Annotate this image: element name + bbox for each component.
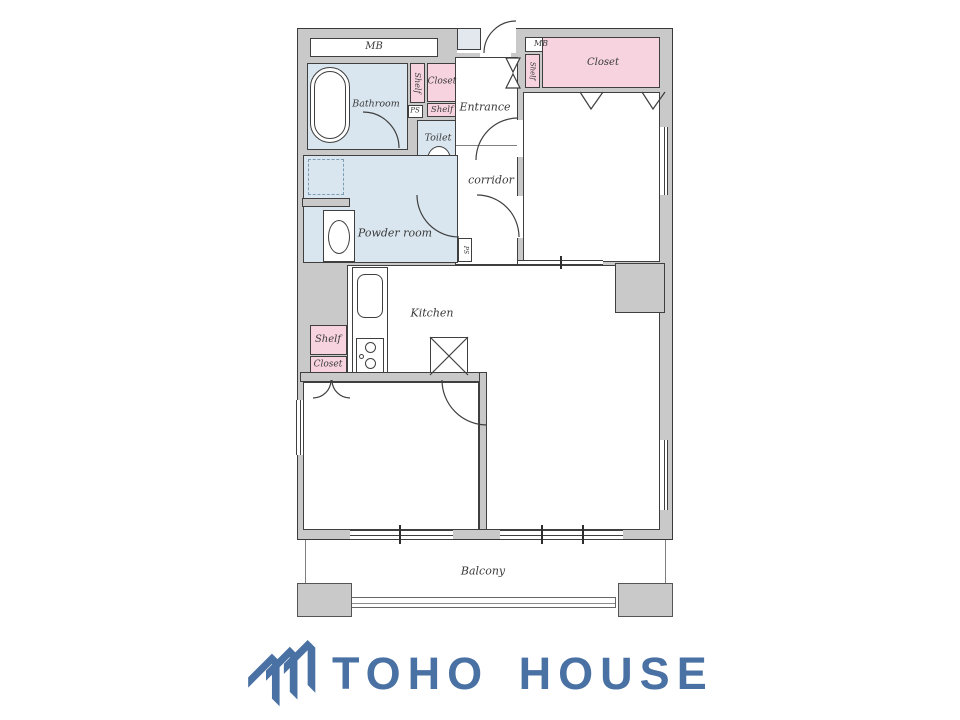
wall-bedroom-horizontal — [300, 372, 483, 382]
entrance-step-line — [456, 145, 517, 146]
pillar-left — [297, 583, 352, 617]
label-balcony: Balcony — [461, 566, 505, 577]
label-shelf-top-vertical: Shelf — [413, 73, 421, 94]
window-bedroom-top-right — [659, 127, 668, 195]
page: MB Shelf Closet PS Shelf Bathroom Toilet… — [0, 0, 960, 720]
label-entrance: Entrance — [459, 102, 510, 113]
toho-house-logo-icon — [248, 640, 318, 708]
window-living-right — [659, 440, 668, 510]
label-shelf-right-vertical: Shelf — [529, 62, 536, 80]
stove-knob — [359, 354, 364, 359]
room-entrance-corridor — [455, 57, 518, 265]
balcony-edge-right — [665, 540, 666, 585]
stove-burner-1 — [365, 342, 376, 353]
toho-house-logo: TOHO HOUSE — [248, 634, 718, 714]
label-closet-top: Closet — [428, 78, 457, 87]
label-toilet: Toilet — [425, 133, 452, 143]
label-bathroom: Bathroom — [352, 99, 400, 109]
bathtub-inner — [314, 71, 346, 139]
label-powder-room: Powder room — [358, 228, 432, 239]
label-mb-left: MB — [365, 42, 383, 52]
label-mb-right: MB — [534, 40, 548, 48]
room-bedroom-bottom — [303, 382, 479, 530]
label-shelf-top: Shelf — [431, 106, 453, 115]
bathtub — [310, 67, 350, 143]
window-left-wall — [296, 400, 304, 455]
label-kitchen: Kitchen — [411, 308, 454, 319]
wall-stub-powder — [302, 198, 350, 207]
pillar-right — [618, 583, 673, 617]
wall-bedroom-vertical — [479, 372, 487, 530]
balcony-edge-left — [305, 540, 306, 585]
room-bedroom-top — [523, 92, 660, 262]
wall-notch-right — [615, 263, 665, 313]
refrigerator-space — [430, 337, 468, 375]
powder-sink-bowl — [328, 220, 350, 254]
floor-plan: MB Shelf Closet PS Shelf Bathroom Toilet… — [295, 20, 677, 622]
washing-machine-space — [308, 159, 344, 195]
kitchen-sink — [357, 274, 383, 318]
stove-burner-2 — [365, 358, 376, 369]
balcony-railing — [350, 597, 616, 608]
label-closet-kitchen: Closet — [314, 361, 343, 370]
logo-text: TOHO HOUSE — [332, 648, 714, 700]
label-corridor: corridor — [468, 175, 514, 186]
entrance-alcove — [457, 28, 481, 50]
label-ps-corridor: PS — [462, 246, 468, 254]
window-balcony-left — [350, 530, 453, 540]
label-ps-top: PS — [410, 108, 420, 115]
label-closet-right: Closet — [587, 58, 619, 68]
label-shelf-kitchen: Shelf — [315, 335, 341, 345]
window-balcony-right — [500, 530, 623, 540]
